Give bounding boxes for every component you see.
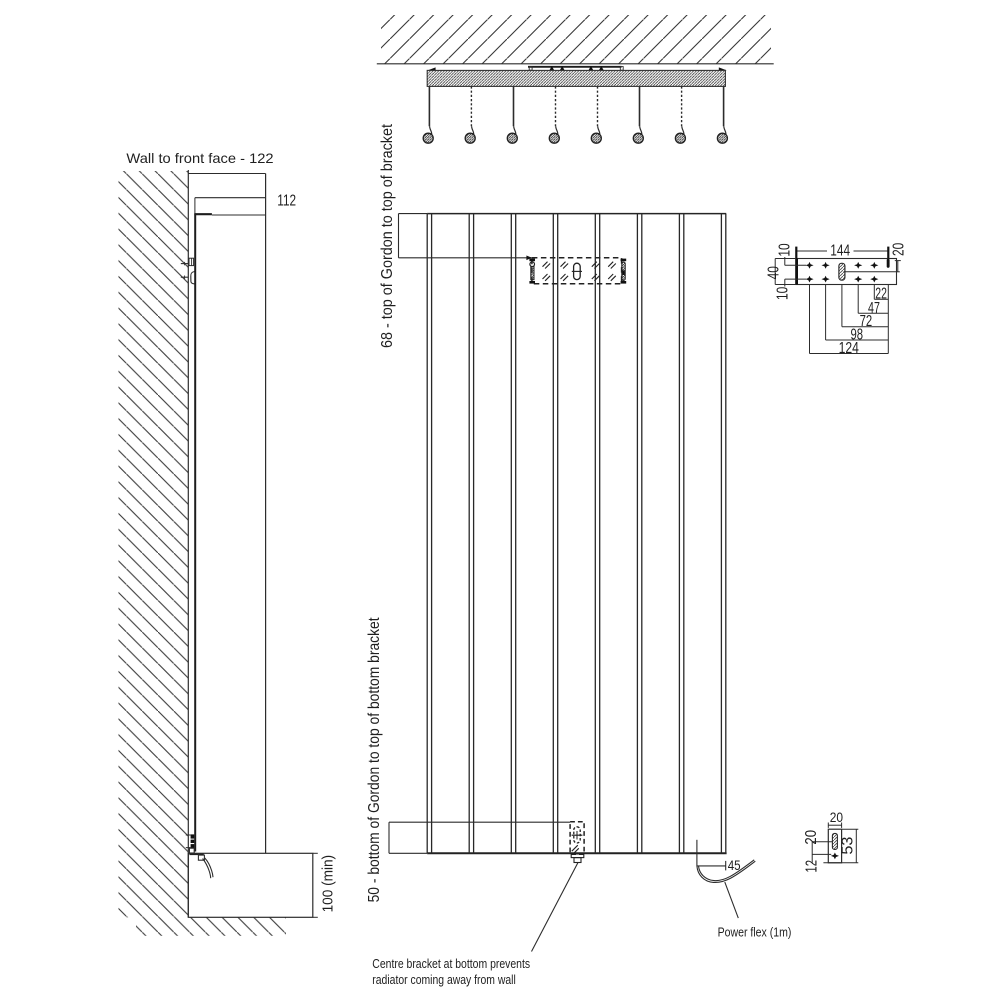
svg-text:40: 40 xyxy=(766,266,783,280)
svg-text:Wall to front face - 122: Wall to front face - 122 xyxy=(126,150,273,166)
svg-text:50 - bottom of Gordon to top o: 50 - bottom of Gordon to top of bottom b… xyxy=(366,617,383,903)
svg-text:112: 112 xyxy=(277,193,296,210)
svg-text:20: 20 xyxy=(803,830,820,845)
svg-text:10: 10 xyxy=(775,286,792,300)
svg-text:124: 124 xyxy=(839,340,860,357)
svg-text:20: 20 xyxy=(830,809,843,825)
svg-text:68 - top of Gordon to top of b: 68 - top of Gordon to top of bracket xyxy=(379,123,396,348)
svg-text:144: 144 xyxy=(830,243,850,260)
svg-text:100 (min): 100 (min) xyxy=(321,855,337,913)
svg-text:Power flex (1m): Power flex (1m) xyxy=(718,924,792,939)
svg-text:12: 12 xyxy=(804,860,821,873)
svg-text:53: 53 xyxy=(840,837,857,855)
svg-text:Centre bracket at bottom preve: Centre bracket at bottom prevents xyxy=(372,956,530,971)
svg-text:radiator coming away from wall: radiator coming away from wall xyxy=(372,972,516,987)
svg-text:20: 20 xyxy=(891,242,908,256)
svg-text:10: 10 xyxy=(777,243,794,257)
